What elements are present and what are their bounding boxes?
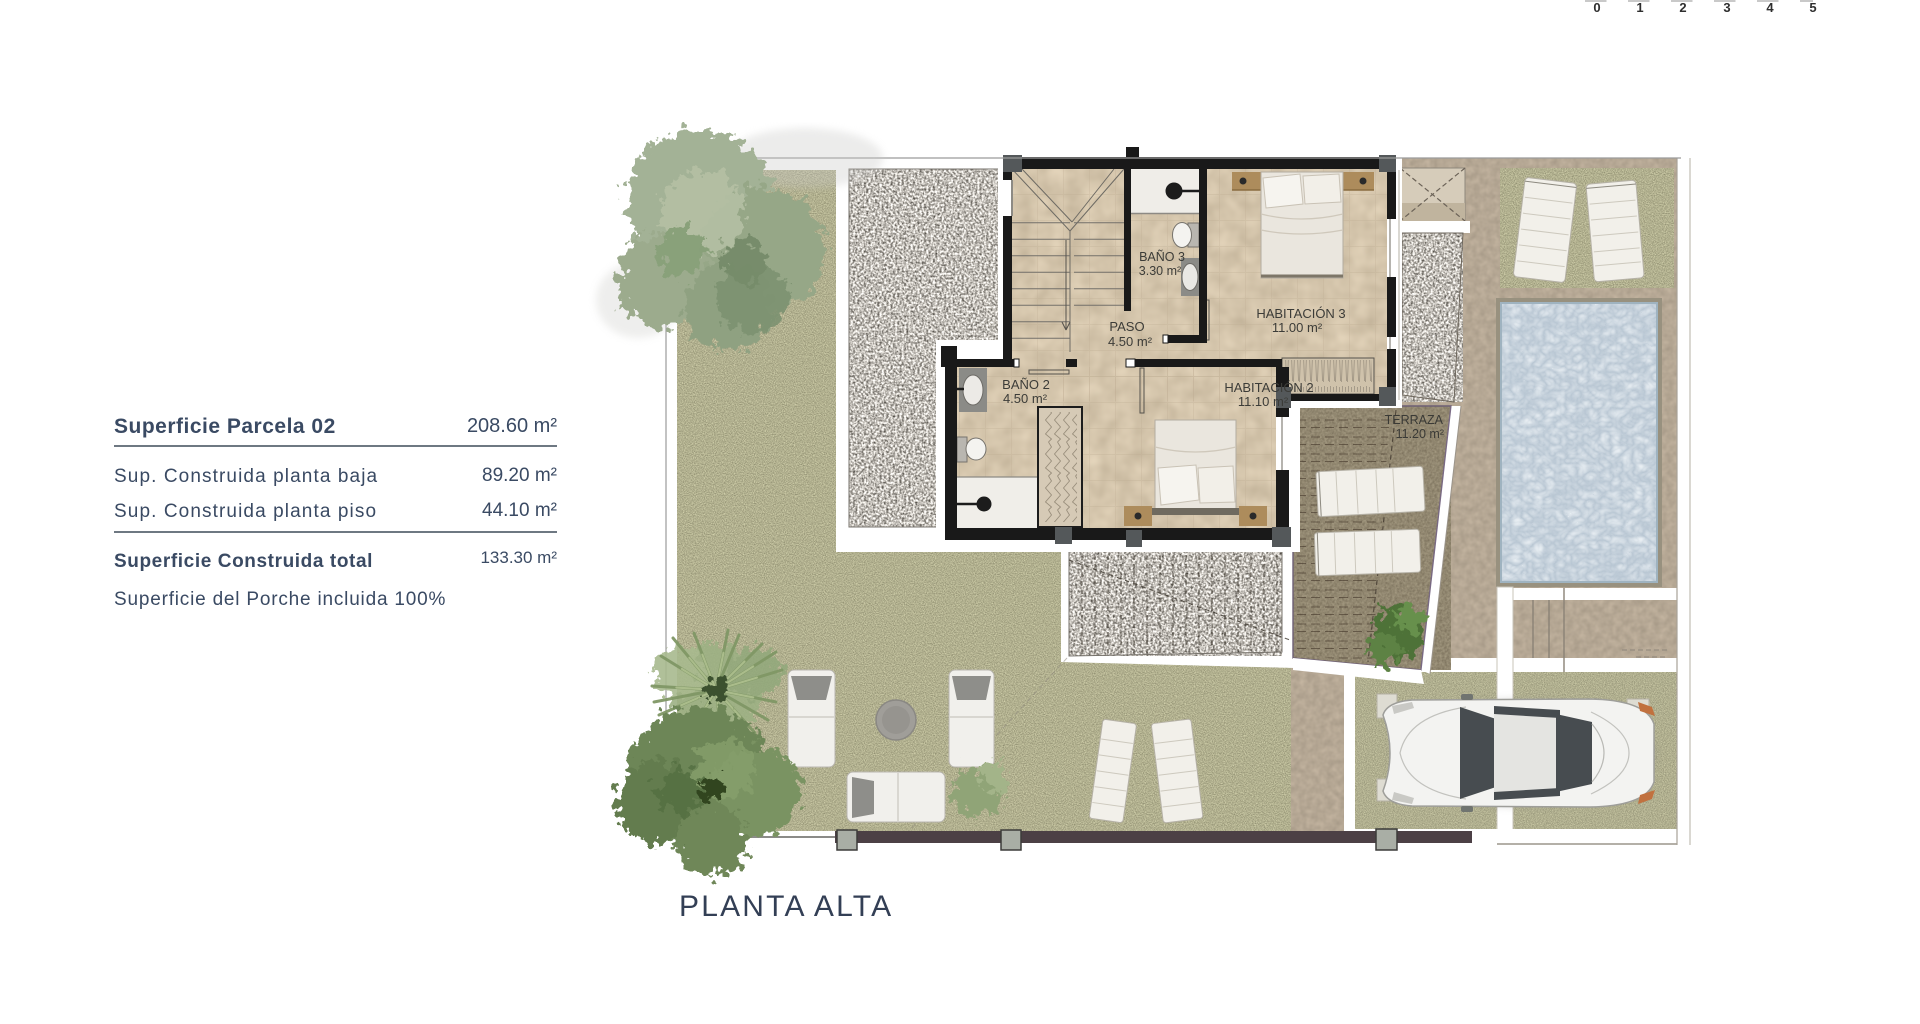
svg-text:5: 5 bbox=[1809, 0, 1816, 15]
svg-text:BAÑO 2: BAÑO 2 bbox=[1002, 377, 1050, 392]
svg-text:HABITACIÓN 3: HABITACIÓN 3 bbox=[1256, 306, 1345, 321]
svg-text:11.00 m²: 11.00 m² bbox=[1272, 320, 1323, 335]
svg-text:1: 1 bbox=[1636, 0, 1643, 15]
svg-text:Superficie del Porche incluida: Superficie del Porche incluida 100% bbox=[114, 589, 446, 610]
svg-text:BAÑO 3: BAÑO 3 bbox=[1139, 250, 1185, 264]
svg-text:11.20 m²: 11.20 m² bbox=[1396, 427, 1444, 441]
svg-text:TERRAZA: TERRAZA bbox=[1385, 413, 1444, 427]
svg-text:Sup. Construida planta baja: Sup. Construida planta baja bbox=[114, 466, 378, 487]
svg-text:Superficie Construida total: Superficie Construida total bbox=[114, 551, 373, 572]
svg-text:0: 0 bbox=[1593, 0, 1600, 15]
svg-text:11.10 m²: 11.10 m² bbox=[1238, 394, 1289, 409]
svg-text:4.50 m²: 4.50 m² bbox=[1003, 391, 1048, 406]
svg-text:3.30 m²: 3.30 m² bbox=[1139, 264, 1181, 278]
svg-text:4: 4 bbox=[1766, 0, 1774, 15]
svg-text:3: 3 bbox=[1723, 0, 1730, 15]
svg-text:PASO: PASO bbox=[1109, 319, 1144, 334]
svg-text:Sup. Construida planta piso: Sup. Construida planta piso bbox=[114, 501, 377, 522]
svg-text:Superficie Parcela 02: Superficie Parcela 02 bbox=[114, 415, 336, 438]
svg-text:PLANTA ALTA: PLANTA ALTA bbox=[679, 890, 893, 923]
svg-text:HABITACIÓN 2: HABITACIÓN 2 bbox=[1224, 380, 1313, 395]
svg-text:2: 2 bbox=[1679, 0, 1686, 15]
svg-text:4.50 m²: 4.50 m² bbox=[1108, 334, 1153, 349]
svg-text:208.60 m²: 208.60 m² bbox=[467, 415, 557, 437]
svg-text:133.30 m²: 133.30 m² bbox=[480, 548, 557, 567]
svg-text:89.20 m²: 89.20 m² bbox=[482, 465, 557, 486]
svg-text:44.10 m²: 44.10 m² bbox=[482, 500, 557, 521]
